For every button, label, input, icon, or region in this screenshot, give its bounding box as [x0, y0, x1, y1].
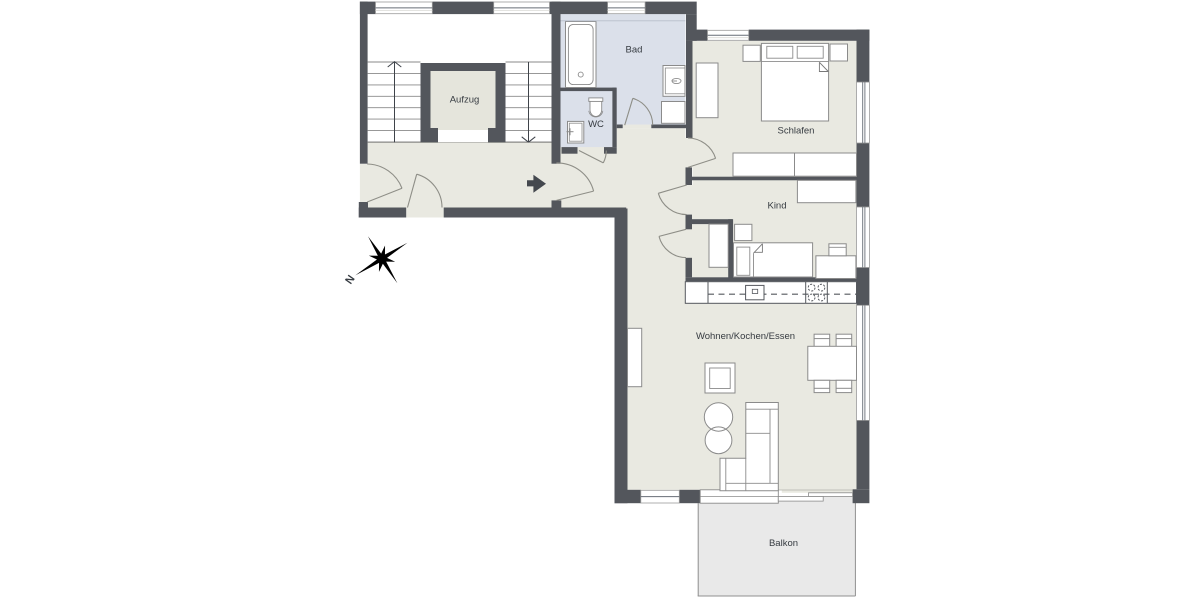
- svg-text:WC: WC: [588, 119, 604, 130]
- svg-text:Balkon: Balkon: [769, 538, 798, 549]
- svg-text:Kind: Kind: [767, 201, 786, 212]
- svg-text:Schlafen: Schlafen: [778, 126, 815, 137]
- svg-text:Wohnen/Kochen/Essen: Wohnen/Kochen/Essen: [696, 331, 795, 342]
- svg-text:Bad: Bad: [626, 45, 643, 56]
- svg-text:Aufzug: Aufzug: [450, 95, 480, 106]
